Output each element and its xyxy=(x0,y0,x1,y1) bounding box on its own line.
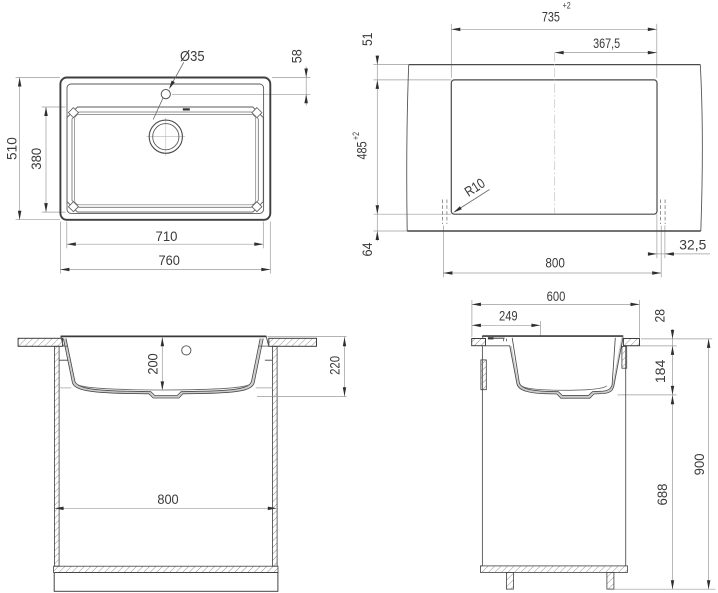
svg-text:735: 735 xyxy=(542,9,560,25)
svg-text:249: 249 xyxy=(499,307,518,323)
svg-text:28: 28 xyxy=(652,309,668,323)
svg-text:760: 760 xyxy=(159,252,181,268)
svg-text:+2: +2 xyxy=(563,1,571,12)
svg-text:32,5: 32,5 xyxy=(679,236,706,252)
svg-text:510: 510 xyxy=(3,137,19,160)
svg-text:64: 64 xyxy=(359,242,375,256)
svg-text:367,5: 367,5 xyxy=(593,35,620,51)
svg-text:58: 58 xyxy=(289,49,305,63)
svg-text:800: 800 xyxy=(157,491,178,507)
svg-text:184: 184 xyxy=(652,359,668,383)
svg-text:688: 688 xyxy=(654,483,670,505)
svg-text:+2: +2 xyxy=(351,132,362,140)
svg-text:600: 600 xyxy=(547,288,566,304)
svg-text:485: 485 xyxy=(353,141,369,159)
svg-text:220: 220 xyxy=(327,356,343,375)
svg-text:710: 710 xyxy=(156,228,178,244)
svg-text:900: 900 xyxy=(691,453,707,475)
svg-text:Ø35: Ø35 xyxy=(180,48,205,65)
svg-text:800: 800 xyxy=(545,255,565,271)
svg-text:380: 380 xyxy=(28,148,44,170)
svg-text:200: 200 xyxy=(145,353,161,374)
svg-text:51: 51 xyxy=(359,32,375,46)
